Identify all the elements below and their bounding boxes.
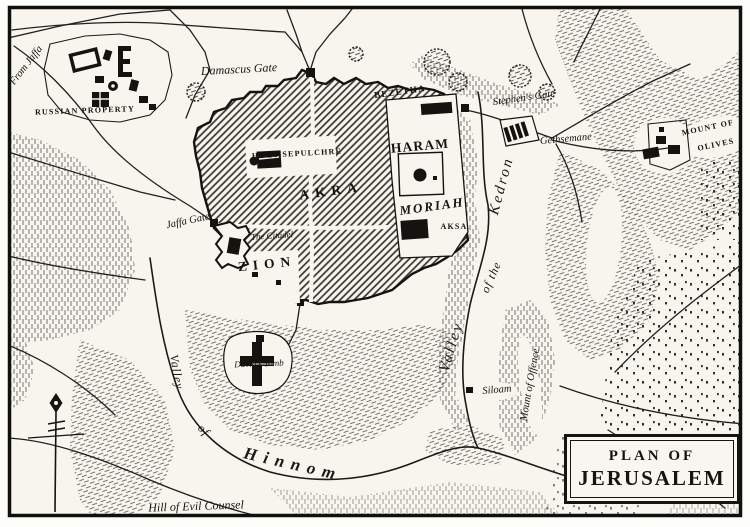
siloam-marker	[466, 387, 473, 393]
davids-tomb-compound	[224, 332, 292, 394]
citadel	[214, 222, 250, 268]
pool-of-bethesda	[421, 102, 453, 115]
zion-quarter	[238, 250, 300, 304]
el-aksa-mosque	[400, 219, 428, 240]
dome-of-the-rock	[414, 169, 427, 182]
map-title-line2: JERUSALEM	[578, 466, 726, 491]
map-title-cartouche: PLAN OF JERUSALEM	[564, 434, 740, 504]
jerusalem-map-page: PLAN OF JERUSALEM From JaffaRUSSIAN PROP…	[0, 0, 750, 527]
map-title-inner-border: PLAN OF JERUSALEM	[570, 440, 734, 498]
holy-sepulchre-church	[245, 136, 337, 179]
map-title-line1: PLAN OF	[609, 448, 695, 465]
gethsemane-garden	[500, 116, 539, 146]
haram-platform	[386, 94, 468, 258]
